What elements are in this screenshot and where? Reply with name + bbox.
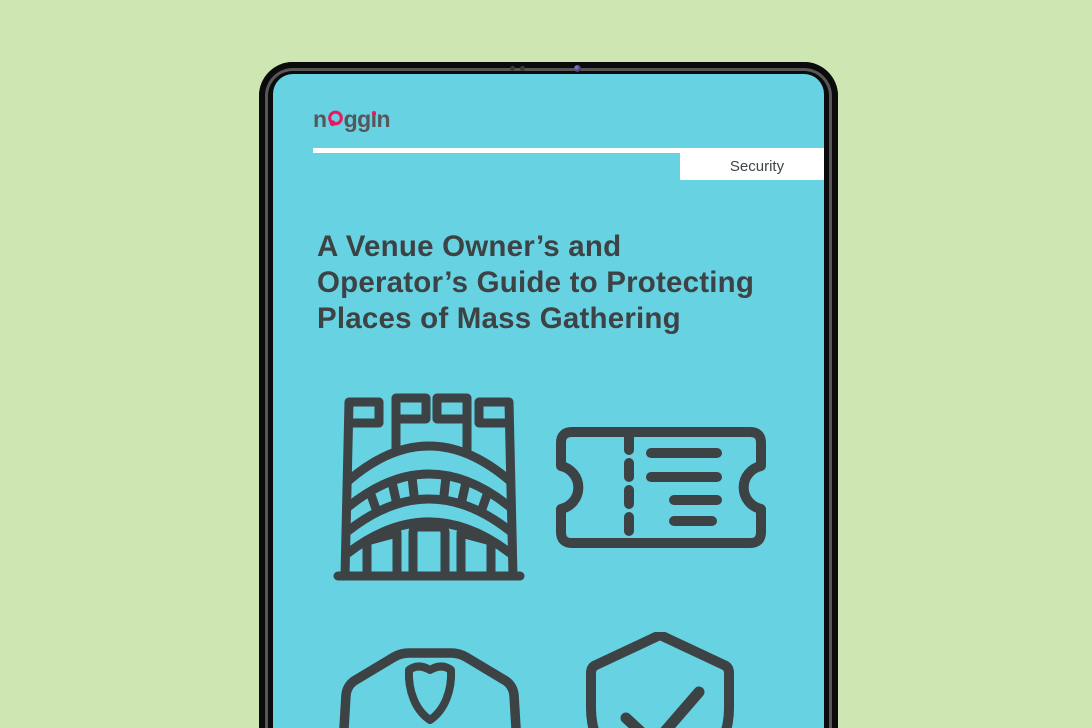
noggin-logo: n ggın bbox=[313, 107, 390, 131]
shield-check-icon bbox=[584, 632, 736, 728]
document-title: A Venue Owner’s and Operator’s Guide to … bbox=[317, 229, 754, 337]
category-tab: Security bbox=[680, 153, 824, 180]
logo-brain-o-icon bbox=[327, 110, 344, 127]
stadium-icon bbox=[333, 387, 525, 581]
title-line-3: Places of Mass Gathering bbox=[317, 301, 754, 337]
front-camera-icon bbox=[574, 65, 581, 72]
logo-text-gg: gg bbox=[344, 107, 371, 131]
tablet-screen: n ggın Security A Venue Owner’s and Oper… bbox=[273, 74, 824, 728]
title-line-2: Operator’s Guide to Protecting bbox=[317, 265, 754, 301]
sensor-dot-icon bbox=[510, 66, 515, 71]
logo-text-n: n bbox=[313, 107, 327, 131]
tablet-device: n ggın Security A Venue Owner’s and Oper… bbox=[259, 62, 838, 728]
security-cap-badge-icon bbox=[339, 648, 521, 728]
ticket-icon bbox=[556, 427, 766, 548]
logo-i-dot-icon bbox=[372, 111, 377, 116]
sensor-dot-icon bbox=[520, 66, 525, 71]
page-background: n ggın Security A Venue Owner’s and Oper… bbox=[0, 0, 1092, 728]
title-line-1: A Venue Owner’s and bbox=[317, 229, 754, 265]
category-label: Security bbox=[730, 158, 784, 175]
logo-text-in: ın bbox=[371, 107, 390, 131]
